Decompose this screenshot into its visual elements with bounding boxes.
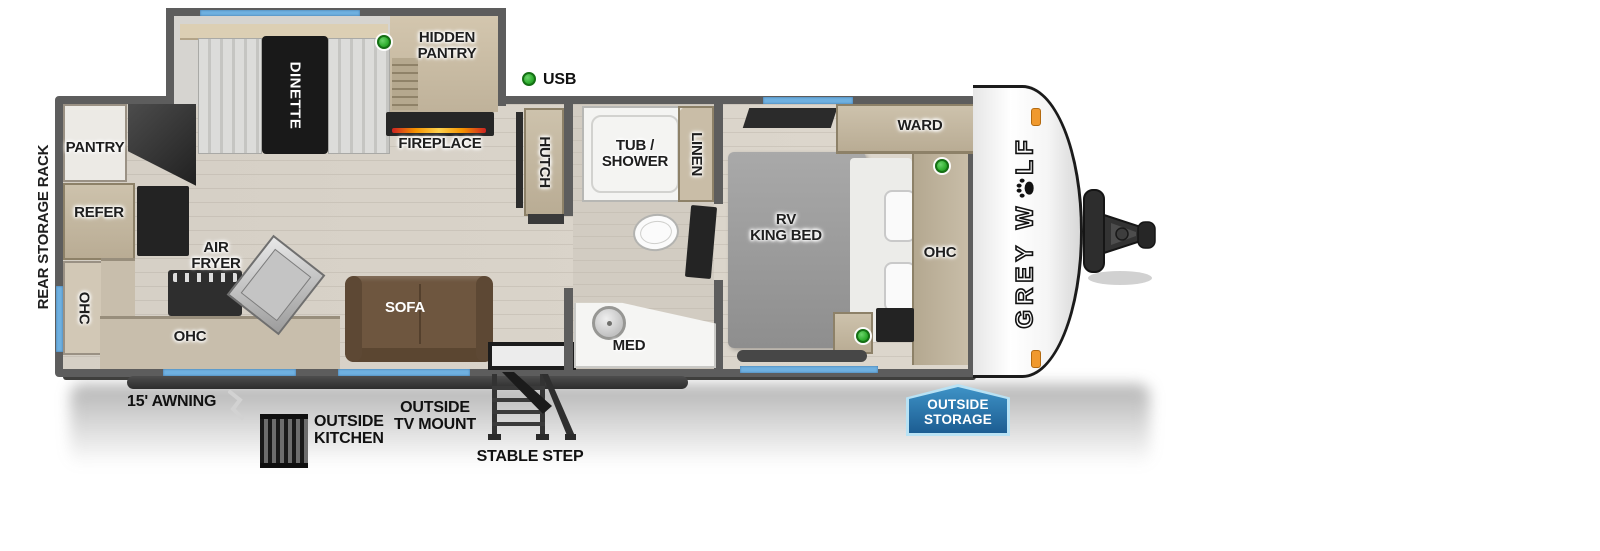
bath-wall-right-upper: [714, 104, 723, 204]
ohc-left-label: OHC: [75, 292, 91, 325]
hutch-label-wrap: HUTCH: [524, 108, 564, 216]
outside-tv-mount-label: OUTSIDE TV MOUNT: [385, 399, 485, 434]
entry-door-landing: [488, 342, 576, 370]
pantry-label: PANTRY: [60, 140, 130, 156]
dinette-label: DINETTE: [287, 61, 304, 129]
dinette-seat-left: [198, 38, 262, 154]
window: [200, 10, 360, 16]
air-fryer-label: AIR FRYER: [176, 240, 256, 272]
clearance-light-icon: [1031, 350, 1041, 368]
counter-left: [101, 258, 135, 318]
tub-shower-label: TUB / SHOWER: [583, 138, 687, 170]
usb-legend-label: USB: [543, 71, 593, 88]
usb-indicator-icon: [935, 159, 949, 173]
bathroom-sink: [592, 306, 626, 340]
window: [56, 286, 63, 352]
bed-rug: [737, 350, 867, 362]
usb-indicator-icon: [377, 35, 391, 49]
usb-indicator-icon: [856, 329, 870, 343]
brand-logo: GREY WLF: [1004, 128, 1048, 336]
window: [763, 97, 853, 104]
awning-crank-icon: [226, 390, 252, 422]
window: [740, 366, 878, 373]
hutch-base: [528, 214, 564, 224]
fireplace-flame: [392, 128, 486, 133]
ohc-bedroom-label: OHC: [915, 245, 965, 261]
bath-wall-left-lower: [564, 288, 573, 370]
window: [163, 369, 296, 376]
hidden-pantry-shelves: [392, 58, 418, 110]
counter-bottom: [100, 316, 340, 369]
hutch-label: HUTCH: [536, 136, 552, 188]
stable-step-icon: [478, 372, 588, 448]
fireplace-label: FIREPLACE: [384, 136, 496, 152]
bath-wall-left-upper: [564, 104, 573, 216]
ohc-left-label-wrap: OHC: [63, 261, 103, 355]
sofa-arm-left: [345, 276, 362, 362]
sofa-label: SOFA: [375, 300, 435, 316]
awning-bar: [127, 376, 688, 389]
sofa: [345, 276, 493, 362]
med-label: MED: [604, 338, 654, 354]
refer-label: REFER: [60, 205, 138, 221]
awning-label: 15' AWNING: [127, 393, 217, 410]
outside-kitchen-grill-icon: [260, 414, 308, 468]
ohc-kitchen-label: OHC: [160, 329, 220, 345]
window: [338, 369, 470, 376]
linen-label-wrap: LINEN: [678, 106, 714, 202]
dinette-seat-right: [328, 38, 390, 154]
linen-label: LINEN: [688, 132, 704, 176]
stable-step-label: STABLE STEP: [468, 448, 592, 465]
dinette-table: DINETTE: [262, 36, 328, 154]
outside-storage-badge-inner: OUTSIDE STORAGE: [909, 387, 1007, 433]
nightstand-dark: [876, 308, 914, 342]
refrigerator-cabinet: [63, 183, 135, 260]
usb-legend-icon: [522, 72, 536, 86]
hitch-icon: [1078, 180, 1168, 290]
hidden-pantry-label: HIDDEN PANTRY: [402, 30, 492, 62]
grey-wolf-logo: GREY WLF: [1012, 135, 1040, 328]
rv-king-bed-label: RV KING BED: [748, 212, 824, 244]
outside-storage-label: OUTSIDE STORAGE: [924, 397, 992, 433]
clearance-light-icon: [1031, 108, 1041, 126]
hutch-rail: [516, 112, 523, 208]
bedroom-tv-icon: [743, 108, 837, 128]
rv-floorplan: REAR STORAGE RACK DINETTE HIDDEN PANTRY …: [0, 0, 1600, 551]
paw-icon: [1016, 178, 1036, 199]
ward-label: WARD: [880, 118, 960, 134]
